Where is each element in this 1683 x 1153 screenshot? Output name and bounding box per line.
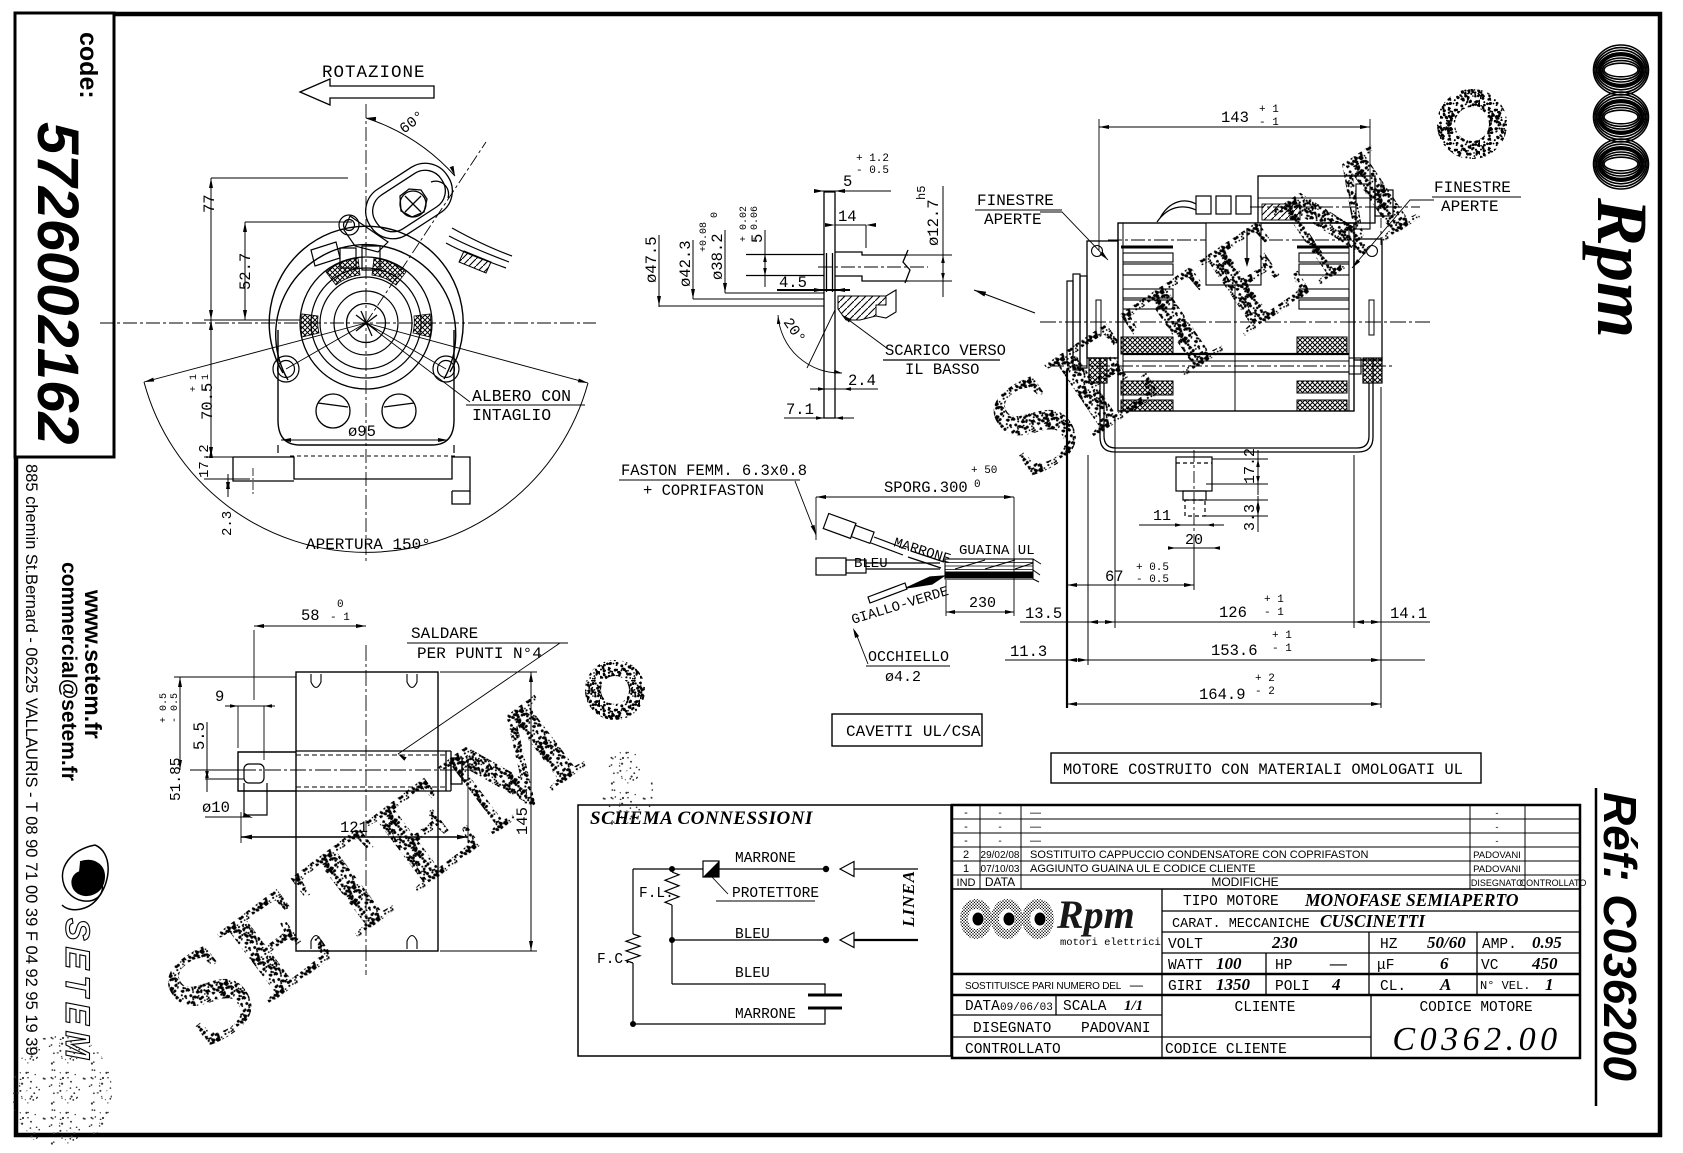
svg-text:+ 1: + 1 (1264, 594, 1284, 606)
svg-text:5726002162: 5726002162 (25, 122, 90, 445)
svg-text:+ COPRIFASTON: + COPRIFASTON (643, 482, 764, 500)
svg-text:ALBERO CON: ALBERO CON (472, 387, 571, 406)
svg-text:+ 1: + 1 (189, 374, 200, 392)
svg-text:CONTROLLATO: CONTROLLATO (965, 1042, 1061, 1058)
svg-text:DATA: DATA (985, 875, 1015, 889)
svg-text:SCARICO VERSO: SCARICO VERSO (885, 342, 1006, 360)
svg-text:5.5: 5.5 (191, 722, 209, 750)
svg-text:—: — (1030, 807, 1041, 819)
svg-text:SPORG.300: SPORG.300 (884, 479, 968, 497)
svg-text:67: 67 (1105, 568, 1124, 586)
svg-text:OCCHIELLO: OCCHIELLO (868, 649, 949, 666)
svg-text:Rpm: Rpm (1056, 892, 1135, 937)
svg-text:CONTROLLATO: CONTROLLATO (1520, 878, 1587, 888)
svg-text:0: 0 (710, 212, 721, 218)
svg-text:IL BASSO: IL BASSO (905, 361, 979, 379)
svg-text:A: A (1439, 975, 1451, 994)
svg-text:+ 0.02: + 0.02 (739, 206, 750, 242)
svg-text:POLI: POLI (1275, 979, 1310, 995)
svg-text:- 1: - 1 (1259, 117, 1279, 129)
svg-text:+ 1: + 1 (1259, 104, 1279, 116)
svg-text:μF: μF (1377, 958, 1394, 974)
svg-text:F.L.: F.L. (639, 886, 674, 902)
svg-text:ø10: ø10 (202, 799, 230, 817)
svg-text:6: 6 (1440, 954, 1449, 973)
svg-text:ø38.2: ø38.2 (709, 233, 727, 280)
svg-text:MARRONE: MARRONE (735, 851, 796, 867)
svg-text:CL.: CL. (1380, 979, 1406, 995)
svg-text:2: 2 (963, 849, 969, 861)
svg-text:INTAGLIO: INTAGLIO (472, 406, 551, 425)
svg-text:FINESTRE: FINESTRE (977, 192, 1054, 210)
svg-text:-: - (964, 807, 968, 819)
svg-text:C0362.00: C0362.00 (1392, 1021, 1561, 1058)
svg-text:commercial@setem.fr: commercial@setem.fr (57, 562, 80, 781)
svg-text:1350: 1350 (1216, 975, 1251, 994)
svg-text:PER PUNTI N°4: PER PUNTI N°4 (417, 645, 542, 663)
svg-text:HP: HP (1275, 958, 1292, 974)
svg-text:DATA: DATA (965, 999, 1000, 1015)
svg-text:APERTE: APERTE (984, 211, 1042, 229)
svg-text:Réf: C036200: Réf: C036200 (1594, 792, 1646, 1081)
svg-text:14.1: 14.1 (1390, 605, 1427, 623)
svg-text:—: — (1030, 835, 1041, 847)
svg-text:50/60: 50/60 (1427, 933, 1466, 952)
svg-text:11: 11 (1153, 508, 1171, 525)
svg-text:DISEGNATO: DISEGNATO (1471, 878, 1523, 888)
svg-text:FASTON FEMM. 6.3x0.8: FASTON FEMM. 6.3x0.8 (621, 462, 807, 480)
svg-text:MARRONE: MARRONE (735, 1007, 796, 1023)
svg-text:—: — (1129, 977, 1143, 992)
svg-text:HZ: HZ (1380, 937, 1398, 953)
svg-text:CLIENTE: CLIENTE (1235, 1000, 1296, 1016)
svg-text:885 chemin St.Bernard - 0622: 885 chemin St.Bernard - 06225 VALLAURIS … (22, 464, 40, 1056)
svg-text:58: 58 (301, 607, 320, 625)
svg-text:CARAT. MECCANICHE: CARAT. MECCANICHE (1172, 917, 1310, 932)
svg-text:BLEU: BLEU (854, 556, 888, 572)
svg-text:WATT: WATT (1168, 958, 1203, 974)
svg-text:SALDARE: SALDARE (411, 625, 478, 643)
svg-text:ROTAZIONE: ROTAZIONE (322, 63, 426, 83)
svg-text:- 0.06: - 0.06 (750, 206, 761, 242)
svg-text:PROTETTORE: PROTETTORE (732, 886, 819, 902)
svg-text:29/02/08: 29/02/08 (981, 850, 1020, 861)
svg-text:DISEGNATO: DISEGNATO (973, 1021, 1051, 1037)
svg-text:AGGIUNTO GUAINA UL E CODICE CL: AGGIUNTO GUAINA UL E CODICE CLIENTE (1030, 863, 1256, 875)
svg-text:PADOVANI: PADOVANI (1473, 850, 1521, 861)
svg-text:1/1: 1/1 (1124, 998, 1143, 1014)
svg-text:MOTORE COSTRUITO CON MATERIALI: MOTORE COSTRUITO CON MATERIALI OMOLOGATI… (1063, 761, 1463, 779)
svg-text:- 1: - 1 (201, 374, 212, 392)
svg-text:4.5: 4.5 (779, 274, 807, 292)
svg-text:-: - (1495, 808, 1498, 819)
svg-text:100: 100 (1216, 954, 1242, 973)
svg-text:- 1: - 1 (1272, 643, 1292, 655)
svg-text:VC: VC (1481, 958, 1499, 974)
svg-text:164.9: 164.9 (1199, 686, 1246, 704)
svg-text:h5: h5 (915, 186, 929, 200)
svg-text:BLEU: BLEU (735, 966, 770, 982)
svg-text:1: 1 (1545, 975, 1554, 994)
svg-text:F.C.: F.C. (597, 952, 632, 968)
svg-text:-: - (1495, 822, 1498, 833)
svg-text:0: 0 (337, 599, 344, 611)
svg-text:VOLT: VOLT (1168, 937, 1203, 953)
svg-text:77: 77 (201, 194, 219, 213)
svg-text:LINEA: LINEA (899, 870, 918, 928)
svg-text:-: - (1495, 836, 1498, 847)
svg-text:—: — (1329, 954, 1347, 973)
svg-text:3.3: 3.3 (1242, 504, 1259, 531)
svg-text:230: 230 (1271, 933, 1298, 952)
svg-text:SOSTITUITO CAPPUCCIO CONDENSAT: SOSTITUITO CAPPUCCIO CONDENSATORE CON CO… (1030, 849, 1368, 861)
svg-text:9: 9 (215, 688, 224, 706)
svg-text:MONOFASE SEMIAPERTO: MONOFASE SEMIAPERTO (1304, 890, 1519, 910)
svg-text:4: 4 (1331, 975, 1341, 994)
svg-text:—: — (1030, 821, 1041, 833)
svg-text:+ 0.5: + 0.5 (159, 693, 170, 723)
svg-text:SOSTITUISCE PARI NUMERO DEL: SOSTITUISCE PARI NUMERO DEL (965, 981, 1122, 992)
svg-text:- 1: - 1 (330, 612, 350, 624)
svg-text:PADOVANI: PADOVANI (1081, 1021, 1151, 1037)
svg-text:- 2: - 2 (1255, 686, 1275, 698)
svg-text:17.2: 17.2 (197, 444, 213, 478)
svg-text:126: 126 (1219, 604, 1247, 622)
svg-text:17.2: 17.2 (1242, 448, 1259, 484)
svg-text:5: 5 (843, 173, 852, 191)
svg-text:7.1: 7.1 (786, 401, 814, 419)
svg-text:- 0.5: - 0.5 (856, 165, 889, 177)
svg-text:-: - (998, 836, 1001, 847)
svg-text:51.85: 51.85 (169, 757, 185, 801)
svg-text:- 1: - 1 (1264, 607, 1284, 619)
svg-text:+ 2: + 2 (1255, 673, 1275, 685)
svg-text:FINESTRE: FINESTRE (1434, 179, 1511, 197)
svg-text:N° VEL.: N° VEL. (1480, 979, 1530, 993)
svg-text:11.3: 11.3 (1010, 643, 1047, 661)
svg-text:230: 230 (969, 595, 996, 612)
svg-text:07/10/03: 07/10/03 (981, 864, 1020, 875)
svg-text:APERTURA 150°: APERTURA 150° (306, 536, 431, 554)
svg-text:153.6: 153.6 (1211, 642, 1258, 660)
svg-text:+ 1: + 1 (1272, 630, 1292, 642)
svg-text:code:: code: (74, 32, 102, 99)
svg-text:AMP.: AMP. (1482, 937, 1517, 953)
svg-text:52.7: 52.7 (237, 253, 255, 290)
svg-text:PADOVANI: PADOVANI (1473, 864, 1521, 875)
svg-text:CAVETTI UL/CSA: CAVETTI UL/CSA (846, 723, 981, 741)
svg-text:-: - (964, 821, 968, 833)
svg-text:SCALA: SCALA (1063, 999, 1107, 1015)
svg-text:MODIFICHE: MODIFICHE (1211, 875, 1278, 889)
svg-text:CODICE MOTORE: CODICE MOTORE (1419, 1000, 1532, 1016)
svg-text:APERTE: APERTE (1441, 198, 1499, 216)
svg-text:GIRI: GIRI (1168, 979, 1203, 995)
svg-text:13.5: 13.5 (1025, 605, 1062, 623)
svg-text:-: - (964, 835, 968, 847)
svg-text:09/06/03: 09/06/03 (1000, 1002, 1053, 1014)
svg-text:ø12.7: ø12.7 (925, 199, 943, 246)
svg-text:14: 14 (838, 208, 857, 226)
svg-text:CODICE CLIENTE: CODICE CLIENTE (1165, 1042, 1287, 1058)
svg-text:GUAINA UL: GUAINA UL (959, 543, 1035, 559)
svg-text:CUSCINETTI: CUSCINETTI (1320, 911, 1426, 931)
svg-text:143: 143 (1221, 109, 1249, 127)
svg-text:IND: IND (957, 877, 976, 889)
svg-text:+ 1.2: + 1.2 (856, 153, 889, 165)
svg-text:ø95: ø95 (348, 423, 376, 441)
svg-text:-: - (998, 822, 1001, 833)
svg-text:0.95: 0.95 (1532, 933, 1562, 952)
svg-text:ø47.5: ø47.5 (643, 236, 661, 283)
svg-text:+ 50: + 50 (971, 465, 997, 477)
svg-text:2.3: 2.3 (220, 511, 236, 536)
svg-text:TIPO MOTORE: TIPO MOTORE (1183, 894, 1279, 910)
svg-text:450: 450 (1531, 954, 1558, 973)
svg-text:2.4: 2.4 (848, 372, 876, 390)
svg-text:+0.08: +0.08 (699, 222, 710, 252)
svg-text:ø42.3: ø42.3 (677, 240, 695, 287)
svg-text:0: 0 (974, 479, 981, 491)
svg-text:+ 0.5: + 0.5 (1136, 562, 1169, 574)
svg-text:motori elettrici: motori elettrici (1060, 937, 1161, 949)
svg-text:-: - (998, 808, 1001, 819)
svg-text:1: 1 (963, 863, 969, 875)
svg-text:ø4.2: ø4.2 (885, 669, 921, 686)
svg-text:Rpm: Rpm (1582, 197, 1662, 338)
svg-text:www.setem.fr: www.setem.fr (80, 589, 106, 739)
svg-text:- 0.5: - 0.5 (170, 693, 181, 723)
svg-text:- 0.5: - 0.5 (1136, 574, 1169, 586)
